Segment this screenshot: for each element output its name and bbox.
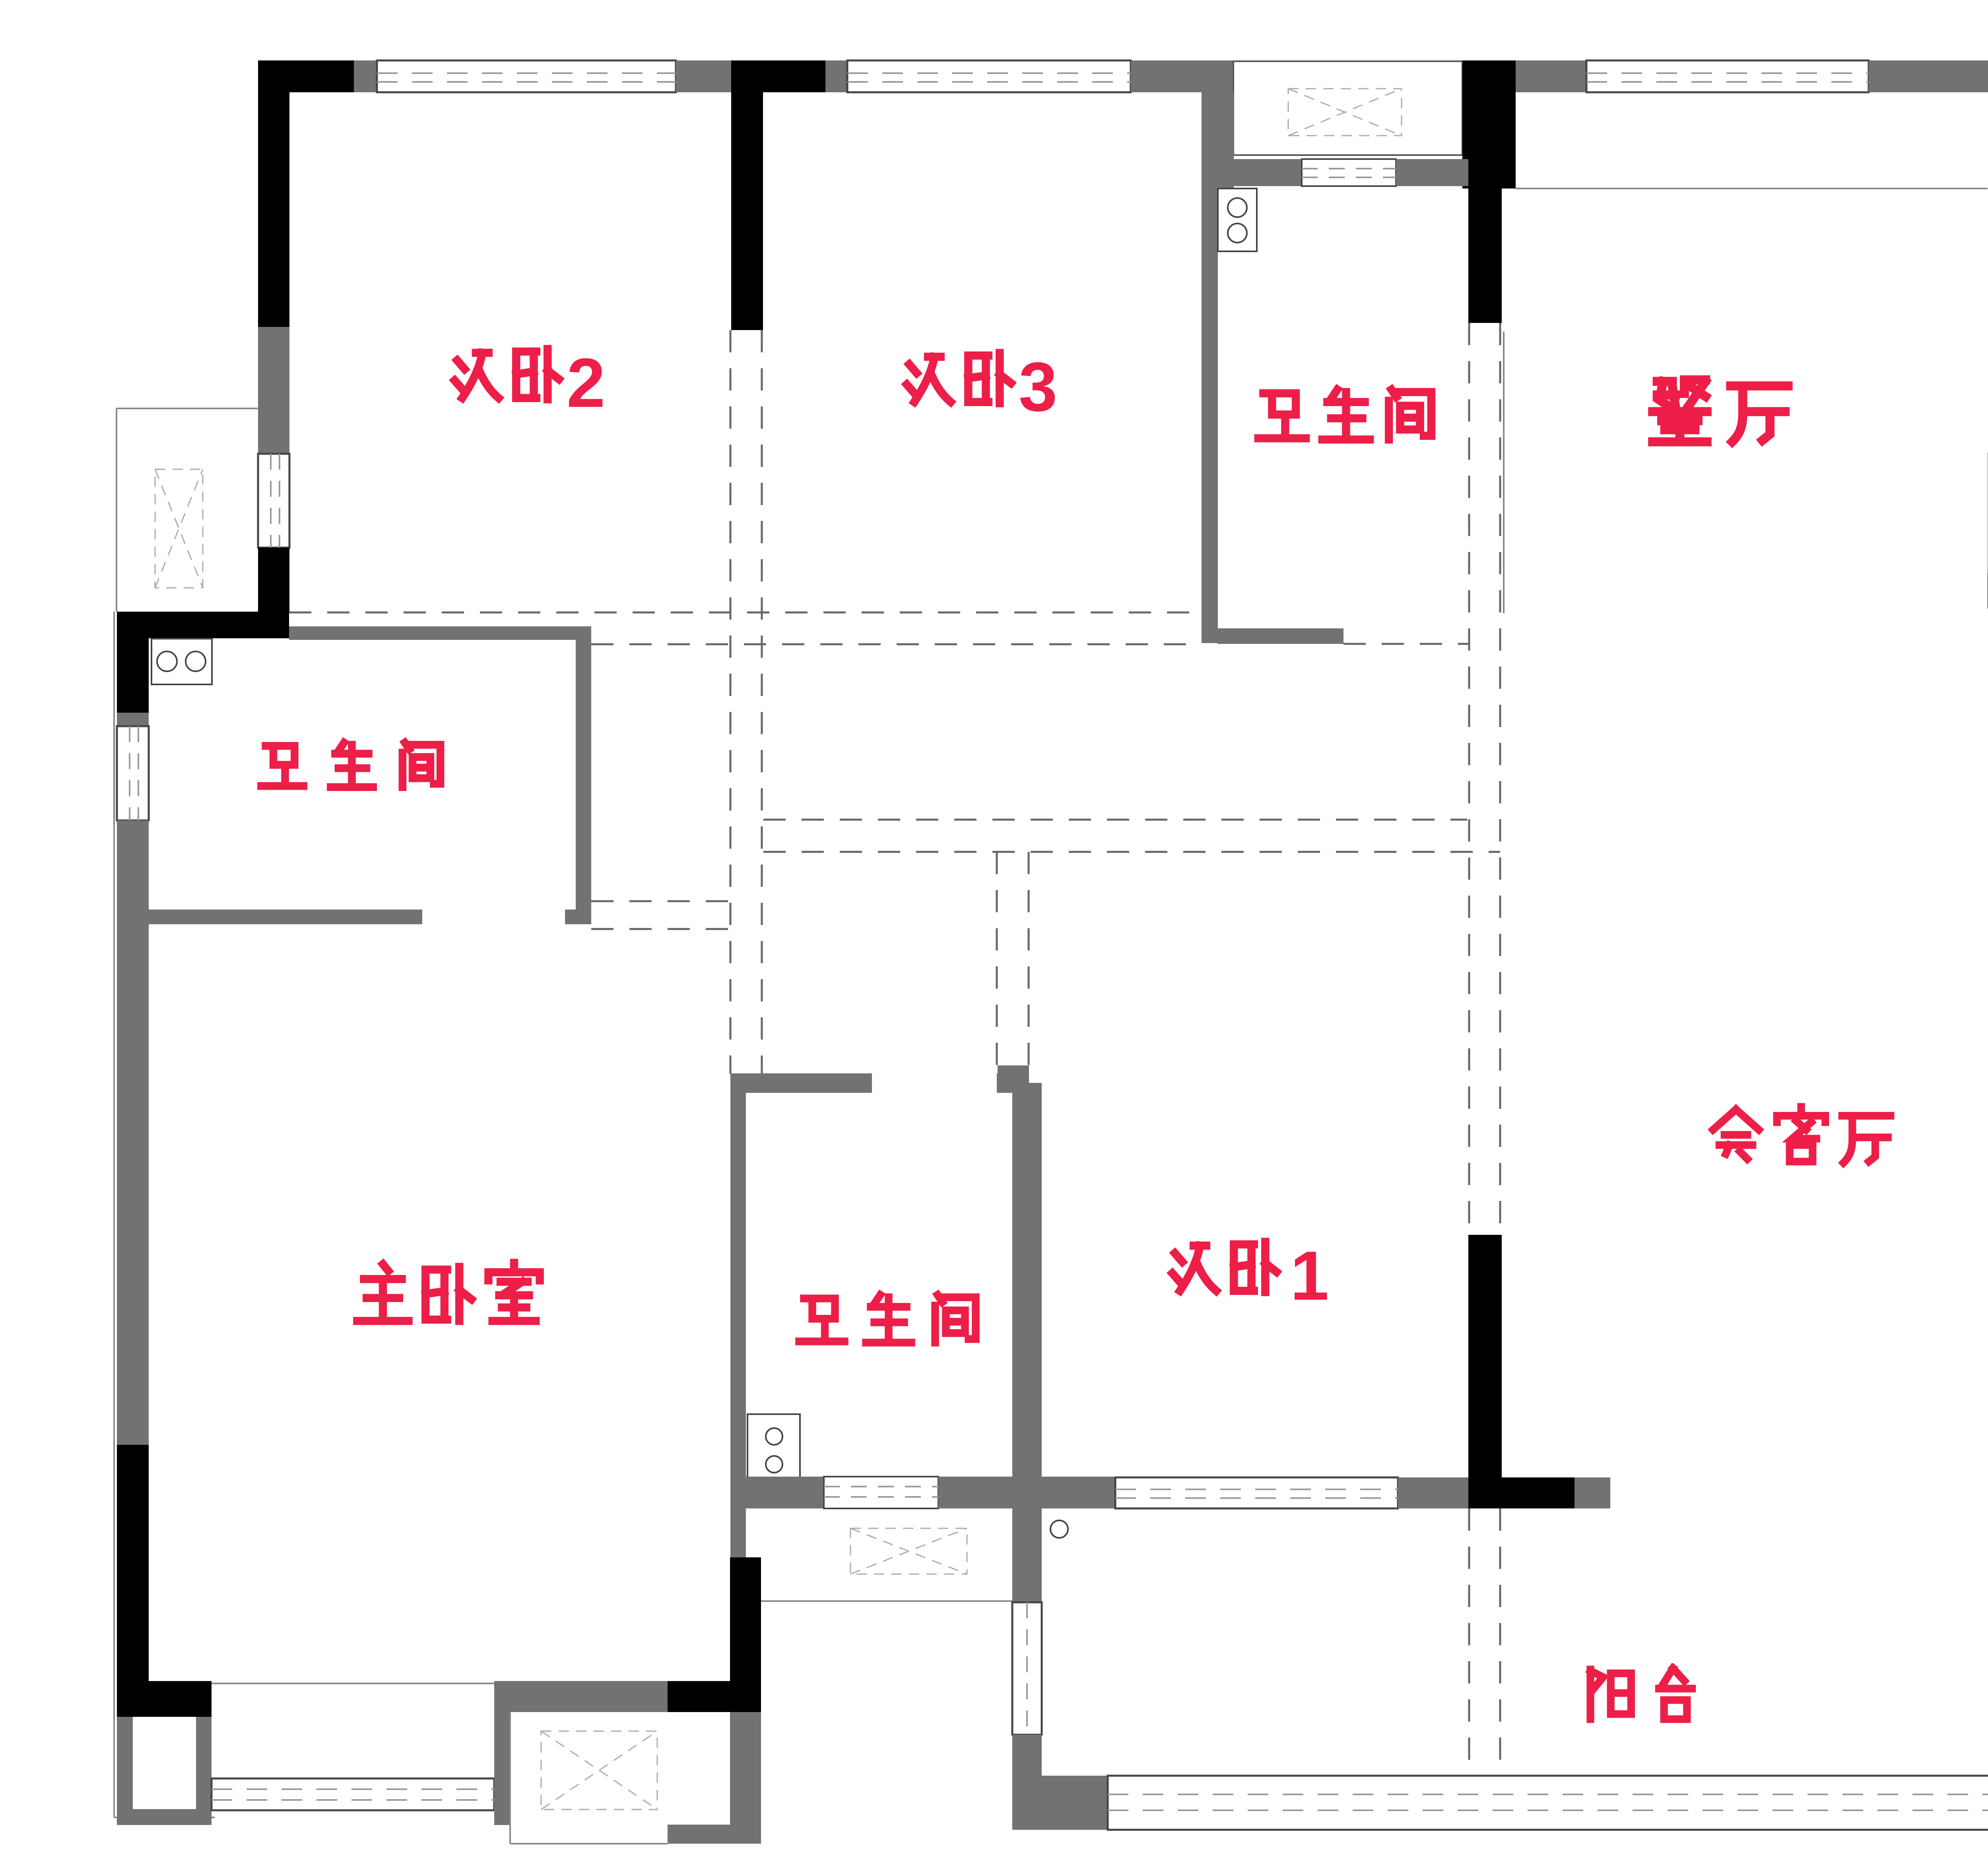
svg-text:2: 2 bbox=[567, 344, 605, 422]
svg-text:3: 3 bbox=[1019, 348, 1057, 426]
svg-text:1: 1 bbox=[1290, 1237, 1329, 1315]
